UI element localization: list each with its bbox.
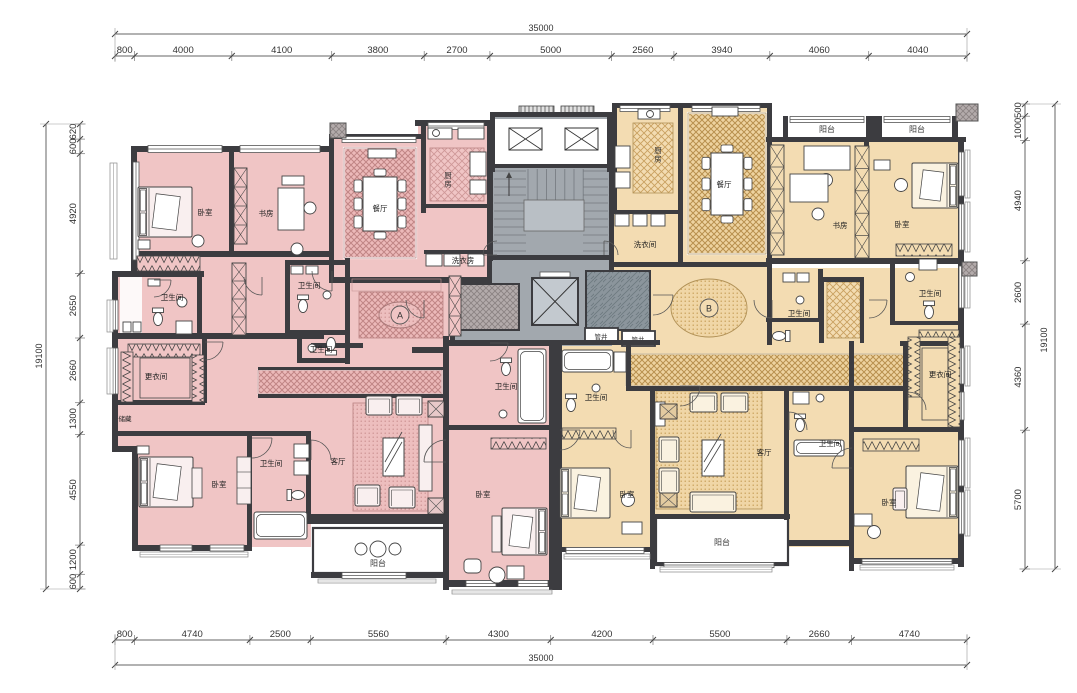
svg-text:卫生间: 卫生间: [819, 438, 842, 448]
svg-text:卫生间: 卫生间: [495, 381, 518, 391]
svg-text:3800: 3800: [367, 45, 388, 56]
svg-text:洗衣房: 洗衣房: [452, 255, 475, 265]
svg-text:卧室: 卧室: [198, 207, 213, 217]
svg-text:卧室: 卧室: [212, 479, 227, 489]
svg-text:4060: 4060: [809, 45, 830, 56]
svg-text:1300: 1300: [68, 408, 79, 429]
svg-text:620: 620: [68, 124, 79, 140]
svg-text:储藏: 储藏: [119, 414, 133, 423]
svg-text:2600: 2600: [1013, 282, 1024, 303]
svg-text:卧室: 卧室: [620, 489, 635, 499]
svg-text:4740: 4740: [899, 629, 920, 640]
svg-text:B: B: [706, 304, 712, 314]
svg-text:5560: 5560: [368, 629, 389, 640]
svg-text:书房: 书房: [259, 208, 274, 218]
svg-text:餐厅: 餐厅: [373, 204, 388, 213]
svg-text:书房: 书房: [833, 220, 848, 230]
svg-text:800: 800: [117, 45, 133, 56]
svg-text:4040: 4040: [907, 45, 928, 56]
svg-text:800: 800: [117, 629, 133, 640]
svg-text:卫生间: 卫生间: [161, 292, 184, 302]
svg-text:4300: 4300: [488, 629, 509, 640]
svg-text:阳台: 阳台: [909, 124, 925, 134]
svg-text:5700: 5700: [1013, 489, 1024, 510]
svg-text:卫生间: 卫生间: [310, 344, 333, 354]
svg-text:4940: 4940: [1013, 190, 1024, 211]
svg-text:客厅: 客厅: [757, 447, 772, 457]
svg-text:4100: 4100: [271, 45, 292, 56]
svg-text:2650: 2650: [68, 295, 79, 316]
svg-text:600: 600: [68, 138, 79, 154]
svg-text:厨房: 厨房: [444, 171, 452, 189]
svg-text:5500: 5500: [709, 629, 730, 640]
svg-text:卫生间: 卫生间: [585, 392, 608, 402]
svg-text:2660: 2660: [809, 629, 830, 640]
svg-text:更衣间: 更衣间: [145, 371, 168, 381]
svg-text:洗衣间: 洗衣间: [634, 239, 657, 249]
svg-text:4360: 4360: [1013, 367, 1024, 388]
svg-text:厨房: 厨房: [654, 146, 662, 164]
svg-text:500: 500: [1013, 102, 1024, 118]
svg-text:卧室: 卧室: [882, 497, 897, 507]
svg-text:4740: 4740: [182, 629, 203, 640]
svg-text:19100: 19100: [1039, 327, 1049, 352]
svg-text:4550: 4550: [68, 479, 79, 500]
svg-text:5000: 5000: [540, 45, 561, 56]
svg-text:4200: 4200: [591, 629, 612, 640]
svg-text:卫生间: 卫生间: [260, 458, 283, 468]
svg-text:阳台: 阳台: [819, 124, 835, 134]
svg-text:卧室: 卧室: [895, 219, 910, 229]
svg-text:卫生间: 卫生间: [298, 280, 321, 290]
svg-text:阳台: 阳台: [370, 558, 386, 568]
svg-text:卧室: 卧室: [476, 489, 491, 499]
svg-text:35000: 35000: [528, 23, 553, 33]
svg-text:3940: 3940: [711, 45, 732, 56]
svg-text:A: A: [397, 311, 403, 321]
svg-text:餐厅: 餐厅: [717, 180, 732, 189]
svg-text:4920: 4920: [68, 203, 79, 224]
svg-text:阳台: 阳台: [714, 537, 730, 547]
svg-text:管井: 管井: [595, 332, 609, 341]
svg-text:更衣间: 更衣间: [929, 369, 952, 379]
svg-text:2500: 2500: [270, 629, 291, 640]
svg-text:4000: 4000: [173, 45, 194, 56]
svg-text:1200: 1200: [68, 549, 79, 570]
svg-text:卫生间: 卫生间: [788, 308, 811, 318]
svg-text:19100: 19100: [34, 343, 44, 368]
svg-text:2660: 2660: [68, 360, 79, 381]
svg-text:35000: 35000: [528, 653, 553, 663]
svg-text:客厅: 客厅: [331, 456, 346, 466]
svg-text:卫生间: 卫生间: [919, 288, 942, 298]
svg-text:600: 600: [68, 574, 79, 590]
svg-text:1000: 1000: [1013, 118, 1024, 139]
svg-text:2700: 2700: [446, 45, 467, 56]
svg-text:2560: 2560: [632, 45, 653, 56]
